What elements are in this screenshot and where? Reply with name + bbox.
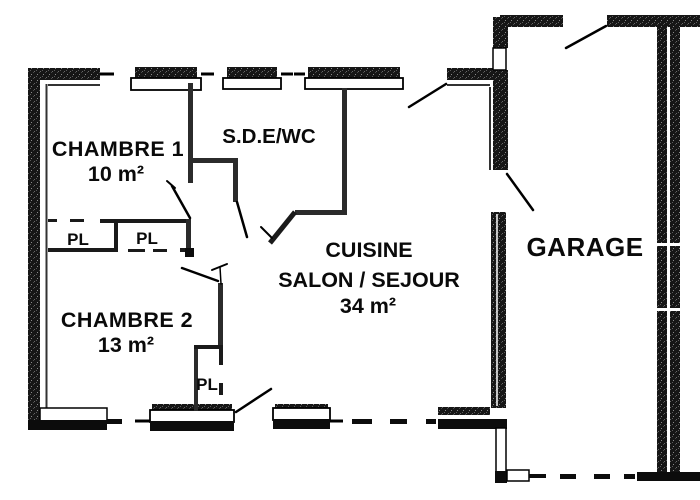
label-salon-sejour: SALON / SEJOUR xyxy=(278,268,460,292)
label-pl1: PL xyxy=(67,230,89,249)
label-pl3: PL xyxy=(196,375,218,394)
window-cuisine xyxy=(305,78,403,89)
window-chambre2 xyxy=(150,410,234,422)
label-chambre1-area: 10 m² xyxy=(88,162,144,186)
label-pl2: PL xyxy=(136,229,158,248)
window-sejour xyxy=(273,408,330,420)
label-garage: GARAGE xyxy=(526,232,643,262)
window-sde xyxy=(223,78,281,89)
label-chambre2-area: 13 m² xyxy=(98,333,154,357)
label-chambre1: CHAMBRE 1 xyxy=(52,137,184,161)
post-wall xyxy=(496,428,506,472)
label-sde-wc: S.D.E/WC xyxy=(222,125,316,148)
floor-plan: CHAMBRE 1 10 m² S.D.E/WC CHAMBRE 2 13 m²… xyxy=(0,0,700,500)
label-salon-area: 34 m² xyxy=(340,294,396,318)
floor-plan-page: CHAMBRE 1 10 m² S.D.E/WC CHAMBRE 2 13 m²… xyxy=(0,0,700,500)
label-chambre2: CHAMBRE 2 xyxy=(61,308,193,332)
window-passage xyxy=(493,48,506,70)
label-cuisine: CUISINE xyxy=(325,238,412,262)
